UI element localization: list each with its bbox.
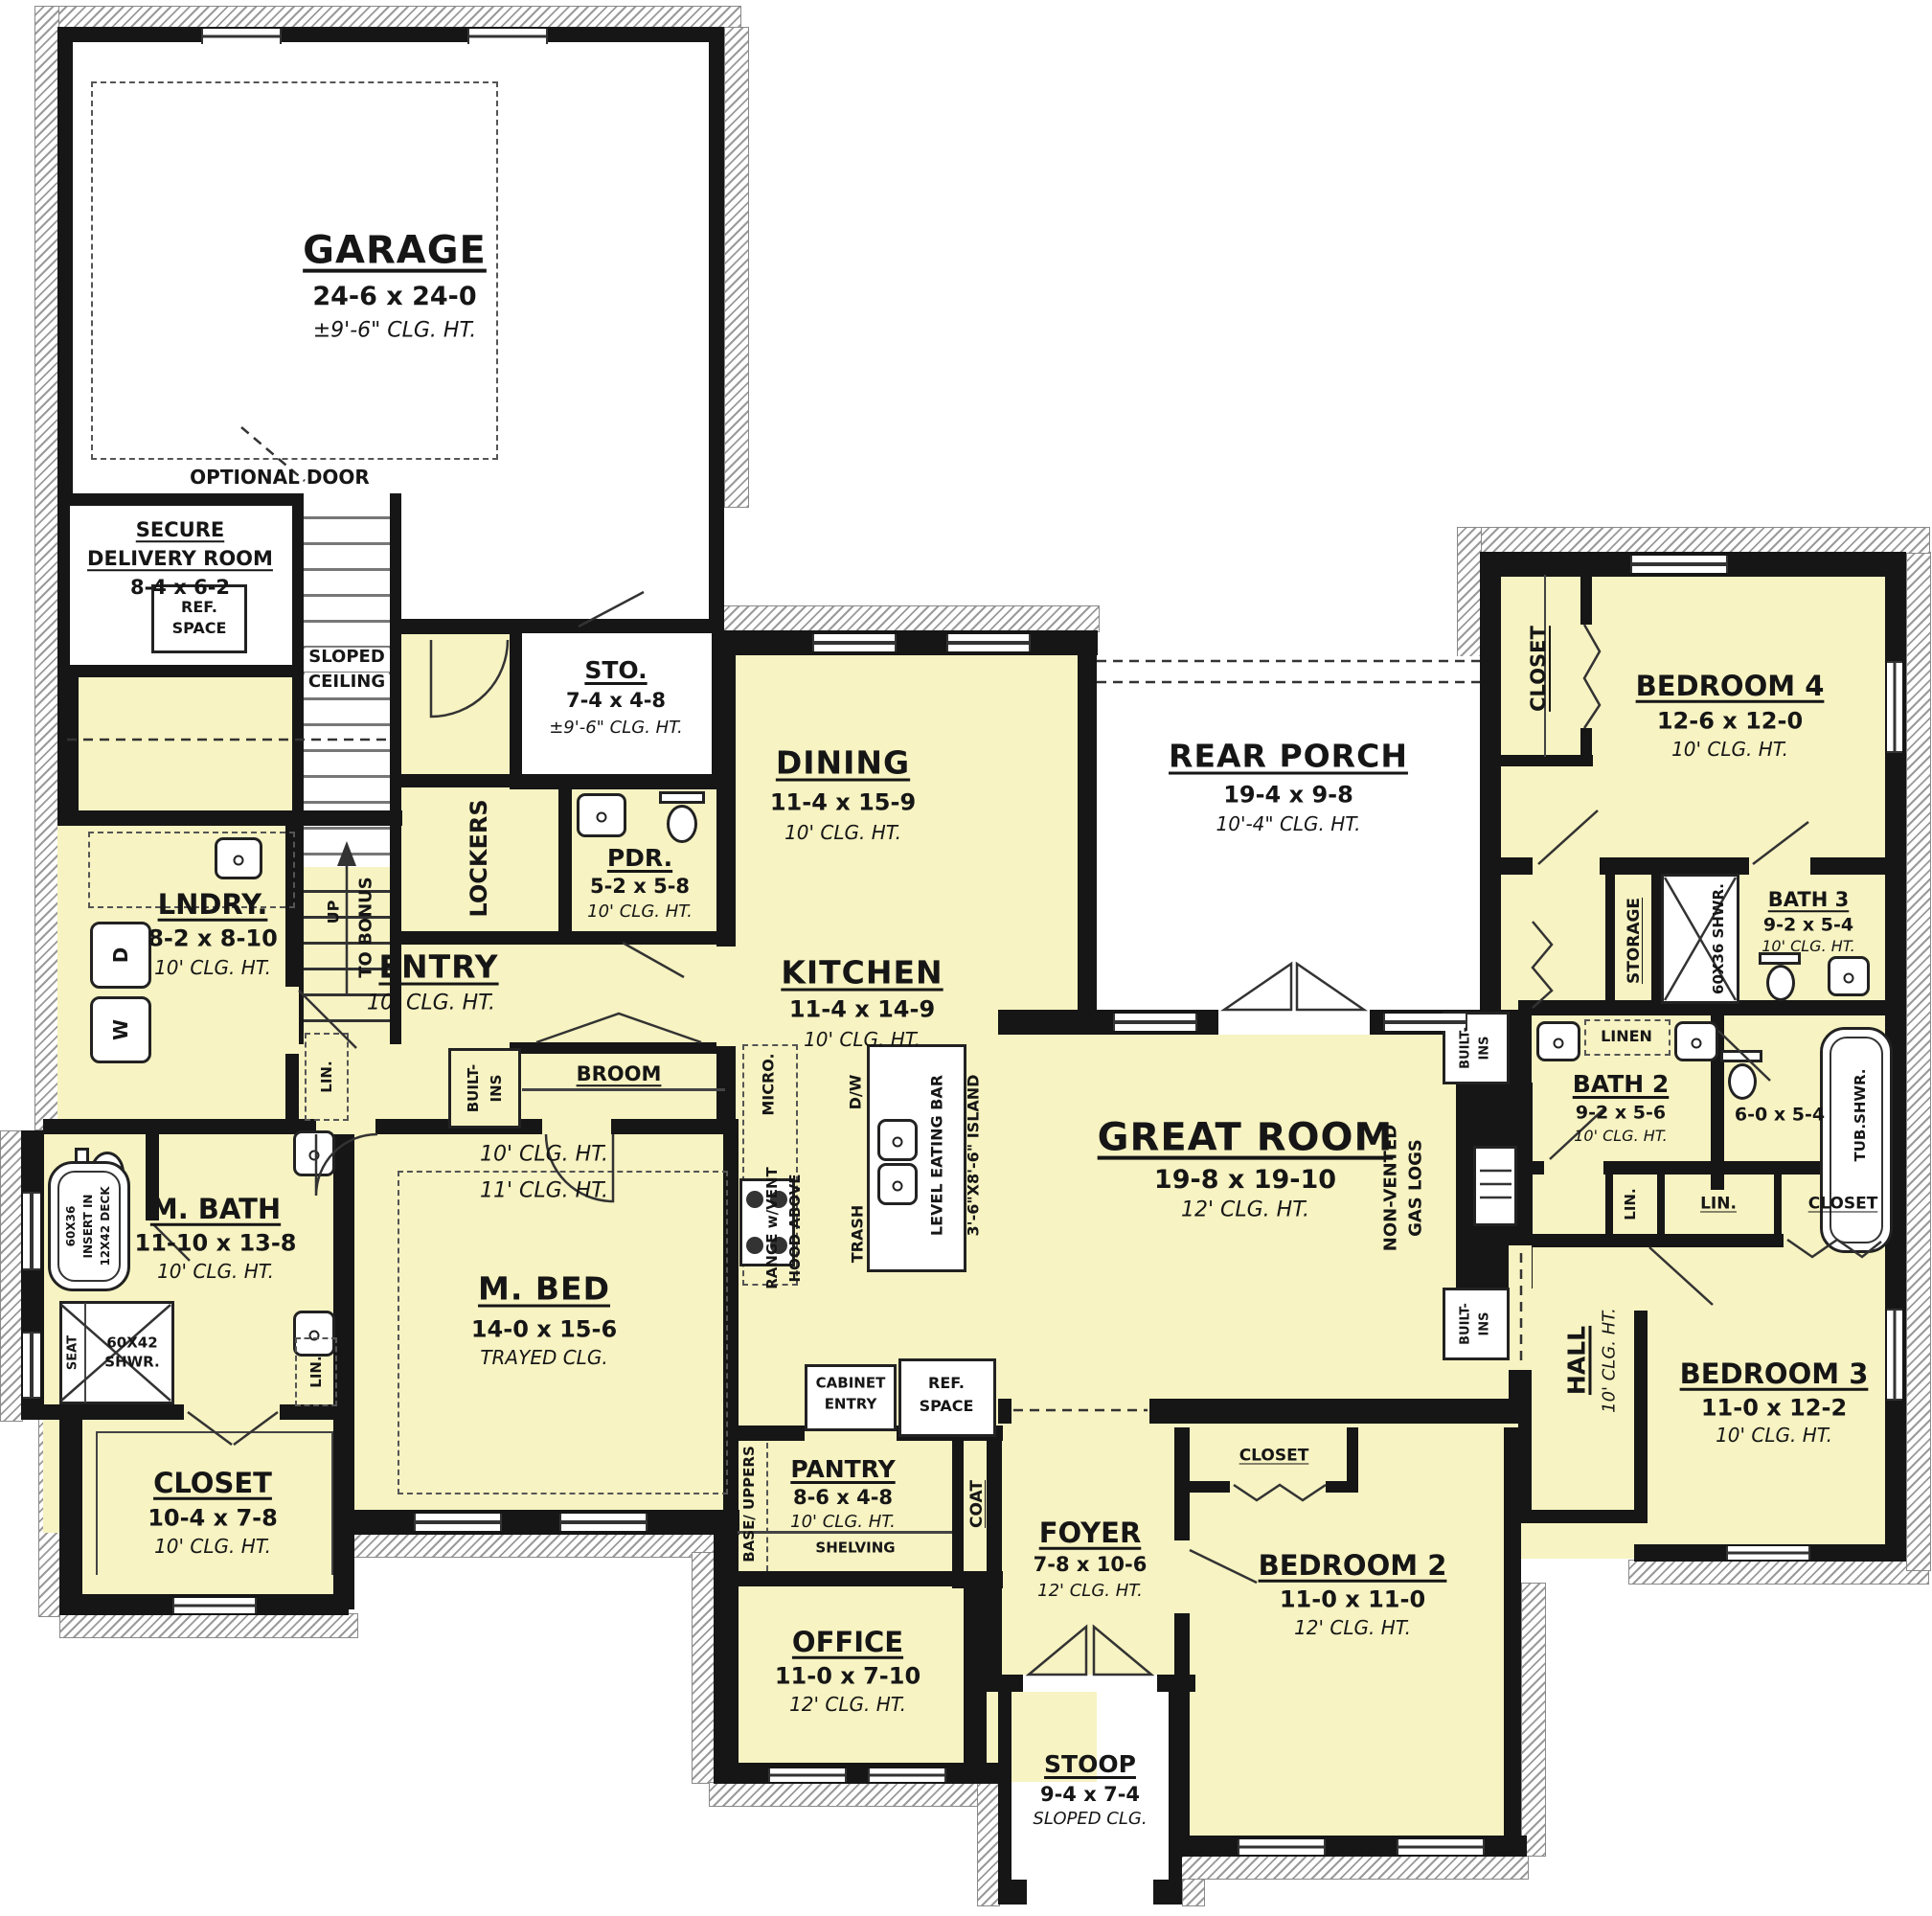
window-dining-2: [946, 634, 1031, 651]
mcloset-shelf-top: [96, 1431, 333, 1433]
builtins-fp-bot-1: BUILT-: [1459, 1303, 1473, 1345]
bath2-sink-2: [1674, 1021, 1718, 1061]
wall-closet3-west: [1774, 1175, 1782, 1234]
stoop-clg: SLOPED CLG.: [1033, 1810, 1147, 1829]
hatch-bed3-south: [1628, 1560, 1929, 1585]
delivery-title-1: SECURE: [136, 519, 224, 542]
door-lndry-gap: [285, 987, 299, 1054]
greatroom-title: GREAT ROOM: [1098, 1117, 1394, 1160]
wall-mbed-south: [333, 1510, 739, 1535]
hatch-garage-east: [724, 27, 749, 508]
window-office-1: [768, 1768, 847, 1782]
bed3-dims: 11-0 x 12-2: [1701, 1396, 1847, 1422]
wall-greatroom-south-a: [998, 1399, 1011, 1424]
hatch-bed4-top: [1480, 527, 1930, 554]
tubroom-dims: 6-0 x 5-4: [1735, 1105, 1825, 1125]
mbath-shwr-2: SHWR.: [104, 1355, 159, 1371]
window-bed4-top: [1630, 556, 1728, 573]
wall-lndry-north: [57, 810, 402, 826]
trash-label: TRASH: [849, 1205, 867, 1264]
wall-lockers-pdr: [558, 774, 572, 945]
fireplace-firebox: [1473, 1146, 1517, 1226]
mbath-seat: SEAT: [66, 1335, 80, 1370]
garage-title: GARAGE: [303, 230, 487, 273]
pantry-base-uppers-line: [766, 1443, 770, 1571]
wall-lin2-west: [1657, 1175, 1665, 1234]
wall-mcloset-west: [59, 1418, 82, 1613]
bed3-title: BEDROOM 3: [1680, 1358, 1869, 1389]
sto-dims: 7-4 x 4-8: [566, 690, 666, 713]
wall-office-east: [964, 1586, 987, 1782]
mbath-dims: 11-10 x 13-8: [134, 1231, 296, 1257]
bath3-clg: 10' CLG. HT.: [1762, 938, 1855, 955]
entry-clg: 10' CLG. HT.: [367, 992, 495, 1016]
range-label-1: RANGE w/VENT: [763, 1167, 781, 1289]
washer-label: W: [109, 1019, 132, 1040]
mcloset-dims: 10-4 x 7-8: [148, 1506, 278, 1532]
micro-label: MICRO.: [760, 1053, 778, 1115]
office-clg: 12' CLG. HT.: [789, 1694, 906, 1715]
garage-dims: 24-6 x 24-0: [312, 283, 476, 311]
bed3-clg: 10' CLG. HT.: [1716, 1425, 1832, 1446]
mbath-tub-1: 60X36: [64, 1206, 78, 1247]
porch-title: REAR PORCH: [1169, 740, 1408, 775]
window-bed3-east: [1887, 1309, 1902, 1401]
gas-logs-1: NON-VENTED: [1381, 1125, 1401, 1251]
pdr-toilet-tank: [659, 791, 705, 804]
tubroom-toilet-bowl: [1728, 1063, 1757, 1100]
mbed-tray10: 10' CLG. HT.: [480, 1144, 608, 1168]
bed4-title: BEDROOM 4: [1636, 671, 1825, 701]
wall-storage-east: [1651, 868, 1661, 1012]
mcloset-shelf-right: [331, 1431, 333, 1575]
wall-dining-north: [720, 630, 1098, 655]
gas-logs-2: GAS LOGS: [1406, 1139, 1426, 1237]
door-bed4-gap: [1533, 857, 1600, 875]
door-bath2-gap: [1544, 1161, 1603, 1175]
stairs-to-bonus: TO BONUS: [356, 877, 376, 978]
window-garage-2: [467, 29, 548, 44]
door-mbed-gap: [542, 1119, 611, 1134]
door-mcloset-gap: [184, 1404, 280, 1420]
lndry-dims: 8-2 x 8-10: [148, 926, 278, 952]
wall-broom-north: [510, 1042, 726, 1054]
coat-label: COAT: [967, 1480, 987, 1528]
hatch-dining-top: [720, 605, 1100, 632]
hatch-east: [1906, 552, 1931, 1571]
builtins-fp-top-1: BUILT-: [1459, 1027, 1473, 1069]
opening-hall: [1509, 1245, 1532, 1370]
window-bed2-2: [1397, 1839, 1485, 1855]
hatch-mbed-south: [333, 1533, 741, 1558]
stairs-up: UP: [325, 901, 343, 924]
wall-bed4-closet-a: [1580, 571, 1592, 625]
window-greatroom-1: [1113, 1014, 1197, 1031]
pantry-shelving: SHELVING: [815, 1540, 895, 1557]
wall-greatroom-south-b: [1149, 1399, 1532, 1424]
dw-label: D/W: [847, 1075, 865, 1110]
bath3-title: BATH 3: [1768, 889, 1849, 912]
window-bed3-south: [1726, 1546, 1810, 1560]
pdr-toilet-bowl: [667, 805, 697, 843]
window-mbed-1: [414, 1514, 502, 1531]
rear-porch: [1097, 656, 1480, 1035]
bath2-clg: 10' CLG. HT.: [1574, 1128, 1668, 1145]
window-office-2: [868, 1768, 946, 1782]
builtins-fireplace-bottom: [1443, 1288, 1510, 1360]
pdr-dims: 5-2 x 5-8: [590, 876, 690, 899]
hatch-bed2-east: [1521, 1583, 1546, 1857]
cabinet-entry-1: CABINET: [816, 1376, 886, 1392]
kitchen-ref-2: SPACE: [920, 1398, 974, 1415]
mbed-dims: 14-0 x 15-6: [471, 1317, 617, 1343]
hall-clg: 10' CLG. HT.: [1600, 1308, 1620, 1413]
broom-label: BROOM: [577, 1063, 662, 1086]
delivery-ref-1: REF.: [181, 599, 217, 616]
pantry-title: PANTRY: [790, 1456, 895, 1483]
window-mbath-1: [23, 1192, 40, 1270]
kitchen-title: KITCHEN: [781, 956, 943, 992]
kitchen-clg: 10' CLG. HT.: [804, 1029, 921, 1050]
island-sink-2: [877, 1163, 918, 1205]
lockers-label: LOCKERS: [466, 799, 492, 917]
window-bed4-east: [1887, 661, 1902, 753]
foyer-title: FOYER: [1039, 1517, 1142, 1548]
greatroom-dims: 19-8 x 19-10: [1154, 1166, 1336, 1195]
lndry-sink: [215, 837, 262, 879]
lndry-clg: 10' CLG. HT.: [154, 957, 271, 978]
hatch-bed4-west: [1457, 527, 1482, 669]
greatroom-clg: 12' CLG. HT.: [1181, 1199, 1309, 1223]
bath3-shower: [1661, 874, 1739, 1004]
bed4-closet-label: CLOSET: [1527, 626, 1550, 712]
wall-bed2-west: [1174, 1427, 1190, 1855]
entry-title: ENTRY: [378, 950, 498, 986]
delivery-title-2: DELIVERY ROOM: [87, 548, 273, 571]
entry-lin-label: LIN.: [318, 1061, 335, 1092]
stoop-post-left: [998, 1880, 1027, 1905]
sloped-ceiling-1: SLOPED: [305, 648, 389, 667]
tub-shwr-label: TUB.SHWR.: [1852, 1069, 1869, 1162]
office-dims: 11-0 x 7-10: [775, 1664, 921, 1690]
door-bed2-gap: [1174, 1540, 1190, 1613]
bed2-dims: 11-0 x 11-0: [1280, 1587, 1425, 1613]
bath2-title: BATH 2: [1573, 1071, 1670, 1098]
garage-clg: ±9'-6" CLG. HT.: [313, 320, 477, 344]
porch-clg: 10'-4" CLG. HT.: [1216, 813, 1360, 834]
bath3-shwr-label: 60X36 SHWR.: [1710, 883, 1727, 994]
pdr-clg: 10' CLG. HT.: [587, 902, 693, 922]
mbath-shower-seat-line: [84, 1303, 86, 1403]
wall-office-west: [714, 1531, 739, 1782]
wall-entry-kitchen: [716, 632, 736, 1130]
floor-plan: GARAGE 24-6 x 24-0 ±9'-6" CLG. HT. OPTIO…: [0, 0, 1932, 1916]
pantry-base-uppers: BASE/ UPPERS: [740, 1446, 758, 1562]
delivery-ref-2: SPACE: [172, 620, 227, 637]
mcloset-title: CLOSET: [153, 1468, 272, 1498]
window-dining-1: [812, 634, 897, 651]
mbath-tub-3: 12X42 DECK: [99, 1186, 112, 1266]
bed2-title: BEDROOM 2: [1259, 1550, 1447, 1581]
wall-storage-west: [1605, 868, 1615, 1012]
lin1-label: LIN.: [1622, 1188, 1639, 1220]
hatch-west: [34, 6, 59, 1130]
foyer-clg: 12' CLG. HT.: [1037, 1582, 1143, 1601]
pdr-sink: [577, 793, 626, 837]
porch-dims: 19-4 x 9-8: [1223, 783, 1353, 809]
wall-coat-west: [952, 1429, 964, 1588]
hatch-closet-south: [59, 1613, 358, 1638]
wall-office-south: [714, 1763, 1003, 1784]
bed2-clg: 12' CLG. HT.: [1294, 1617, 1411, 1638]
island-sink-1: [877, 1119, 918, 1161]
mbath-shwr-1: 60X42: [106, 1335, 157, 1352]
bath2-sink-1: [1536, 1021, 1580, 1061]
pantry-dims: 8-6 x 4-8: [793, 1487, 893, 1510]
pdr-title: PDR.: [607, 845, 672, 872]
dining-clg: 10' CLG. HT.: [784, 822, 901, 843]
kitchen-dims: 11-4 x 14-9: [789, 997, 935, 1023]
kitchen-ref-1: REF.: [928, 1375, 965, 1392]
mbath-tub-2: INSERT IN: [81, 1195, 95, 1259]
window-bed2-1: [1238, 1839, 1326, 1855]
storage-label: STORAGE: [1625, 898, 1644, 984]
wall-bed4-west: [1480, 552, 1501, 1016]
tubroom-toilet-tank: [1720, 1050, 1762, 1062]
broom-shelf-line: [522, 1088, 725, 1091]
dryer-label: D: [109, 947, 132, 964]
island-label: 3'-6"X8'-6" ISLAND: [965, 1075, 983, 1237]
bed2-closet-bifold-gap: [1230, 1481, 1326, 1493]
bath3-toilet-bowl: [1766, 965, 1795, 1001]
bed4-dims: 12-6 x 12-0: [1657, 709, 1803, 735]
bed3-closet-label: CLOSET: [1808, 1195, 1878, 1213]
wall-hall-south: [1532, 1510, 1648, 1523]
range-label-2: HOOD ABOVE: [786, 1175, 804, 1283]
eating-bar-label: LEVEL EATING BAR: [928, 1075, 946, 1236]
opening-entry-kitchen: [716, 947, 736, 1046]
wall-bed2-closet-east: [1347, 1427, 1358, 1493]
wall-lin1-west: [1605, 1175, 1613, 1234]
door-bed3-gap: [1634, 1247, 1648, 1311]
builtins-entry-2: INS: [488, 1075, 505, 1103]
mbath-clg: 10' CLG. HT.: [157, 1261, 274, 1282]
bath3-sink: [1828, 956, 1870, 996]
porch-doors-gap: [1218, 1010, 1370, 1035]
wall-stoop-west: [998, 1688, 1011, 1901]
foyer-dims: 7-8 x 10-6: [1034, 1554, 1148, 1577]
builtins-entry-box: [448, 1048, 521, 1129]
builtins-fp-bot-2: INS: [1478, 1312, 1492, 1335]
mcloset-shelf-left: [96, 1431, 98, 1575]
wall-dining-porch: [1078, 632, 1097, 1035]
mbath-lin: LIN.: [307, 1356, 325, 1387]
delivery-dims: 8-4 x 6-2: [130, 577, 230, 600]
stoop-post-right: [1153, 1880, 1182, 1905]
hatch-mbath-west: [0, 1130, 23, 1422]
optional-door-label: OPTIONAL DOOR: [190, 467, 370, 488]
dining-title: DINING: [776, 746, 910, 782]
sloped-ceiling-2: CEILING: [305, 673, 389, 692]
mbed-title: M. BED: [478, 1272, 610, 1308]
bed2-closet-label: CLOSET: [1239, 1447, 1309, 1465]
bath3-dims: 9-2 x 5-4: [1763, 915, 1853, 935]
stoop-title: STOOP: [1044, 1751, 1136, 1778]
mbath-sink-1: [293, 1130, 335, 1176]
office-title: OFFICE: [792, 1627, 903, 1657]
window-mbath-2: [23, 1332, 40, 1399]
sto-title: STO.: [584, 657, 647, 684]
hatch-bed2-south: [1174, 1855, 1529, 1880]
linen-label: LINEN: [1601, 1028, 1652, 1045]
bath2-dims: 9-2 x 5-6: [1576, 1103, 1666, 1123]
builtins-entry-1: BUILT-: [465, 1064, 482, 1113]
builtins-fp-top-2: INS: [1478, 1036, 1492, 1060]
window-greatroom-2: [1383, 1014, 1467, 1031]
mbath-title: M. BATH: [150, 1194, 281, 1224]
cabinet-entry-2: ENTRY: [825, 1397, 877, 1413]
mbed-tray11: 11' CLG. HT.: [480, 1180, 608, 1204]
wall-hall-west: [1518, 1412, 1532, 1523]
door-bath3-gap: [1749, 857, 1810, 875]
hall-title: HALL: [1563, 1326, 1591, 1395]
window-mcloset: [172, 1598, 257, 1613]
bed4-clg: 10' CLG. HT.: [1671, 739, 1788, 760]
lndry-title: LNDRY.: [158, 889, 268, 920]
sto-clg: ±9'-6" CLG. HT.: [549, 718, 683, 738]
stoop-dims: 9-4 x 7-4: [1040, 1784, 1140, 1807]
lin2-label: LIN.: [1700, 1195, 1737, 1213]
hatch-office-south: [709, 1782, 990, 1807]
dining-dims: 11-4 x 15-9: [770, 790, 916, 816]
pantry-clg: 10' CLG. HT.: [790, 1513, 896, 1532]
window-mbed-2: [559, 1514, 648, 1531]
mcloset-clg: 10' CLG. HT.: [154, 1536, 271, 1557]
window-garage-1: [201, 29, 282, 44]
wall-notch-west: [57, 671, 79, 824]
front-door-gap: [1023, 1675, 1157, 1692]
mbed-clg: TRAYED CLG.: [480, 1347, 607, 1368]
wall-foyer-west: [987, 1429, 1002, 1692]
